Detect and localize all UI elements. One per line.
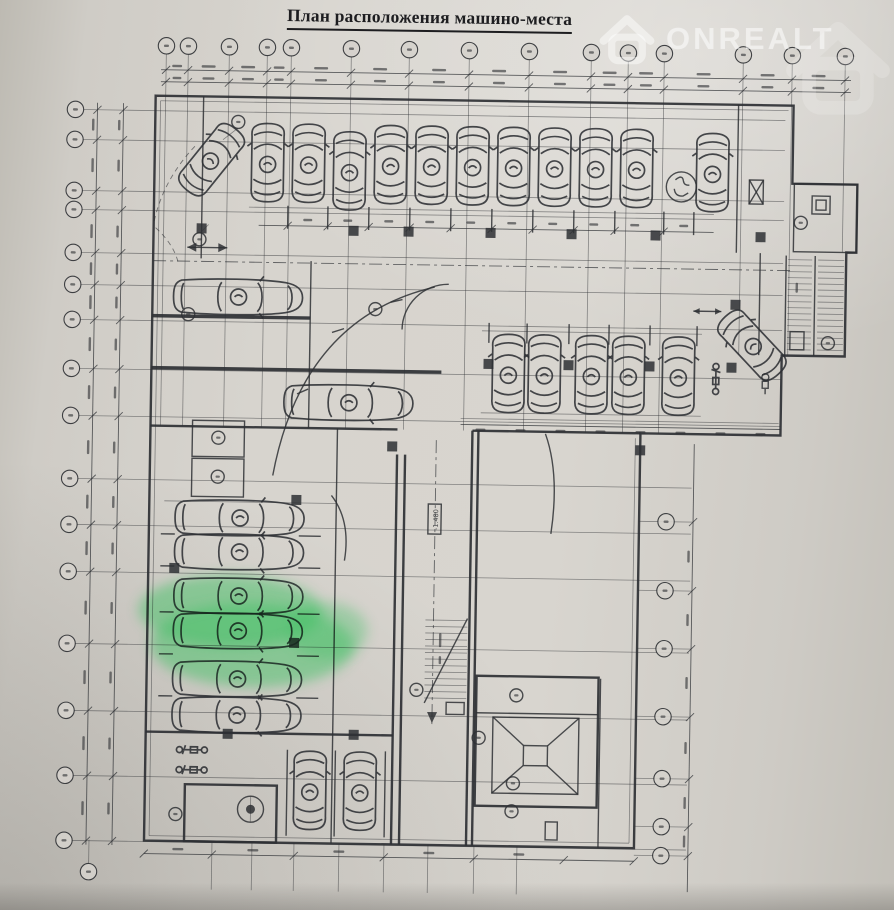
- parked-car-symbol: [175, 496, 305, 540]
- dim-number-smudge: [343, 219, 352, 222]
- grid-axis-bubble: [56, 832, 73, 849]
- bollard-base: [762, 381, 768, 394]
- plan-line: [273, 285, 435, 478]
- plan-line: [144, 854, 634, 862]
- parked-car-symbol: [171, 116, 252, 203]
- circled-number-marker: [410, 683, 423, 696]
- dim-number-smudge: [202, 77, 214, 80]
- parked-car-symbol: [370, 125, 412, 204]
- grid-axis-bubble: [63, 360, 80, 377]
- dim-number-smudge: [439, 656, 442, 664]
- dim-number-smudge: [333, 850, 344, 853]
- ramp-down-arrow: [427, 712, 437, 723]
- grid-axis-bubble: [658, 513, 675, 530]
- column-square: [730, 300, 740, 310]
- circled-number-marker: [182, 308, 195, 321]
- grid-axis-bubble: [65, 244, 82, 261]
- dim-number-smudge: [107, 802, 110, 814]
- two-way-arrow-icon: [187, 243, 227, 253]
- dim-number-smudge: [640, 84, 652, 87]
- plan-line: [334, 751, 335, 837]
- dim-number-smudge: [90, 224, 93, 238]
- parked-car-symbol: [534, 128, 576, 207]
- accessible-parking-icon: [666, 172, 696, 202]
- dim-number-smudge: [595, 430, 605, 433]
- dim-number-smudge: [90, 262, 93, 275]
- grid-axis-bubble: [401, 41, 418, 58]
- parked-car-symbol: [173, 275, 303, 319]
- dim-number-smudge: [84, 601, 87, 615]
- plan-line: [425, 678, 467, 679]
- column-square: [755, 232, 765, 242]
- dim-number-smudge: [715, 432, 725, 435]
- dim-number-smudge: [81, 801, 84, 815]
- plan-line: [383, 844, 384, 892]
- dim-number-smudge: [630, 224, 639, 227]
- plan-line: [425, 652, 467, 653]
- plan-line: [425, 633, 467, 634]
- dim-number-smudge: [114, 387, 117, 399]
- dim-number-smudge: [679, 225, 688, 228]
- dim-number-smudge: [812, 75, 826, 78]
- dim-number-smudge: [85, 541, 88, 555]
- plan-line: [384, 751, 385, 837]
- dim-number-smudge: [373, 68, 387, 71]
- plan-line: [152, 316, 310, 318]
- circled-number-marker: [212, 431, 225, 444]
- plan-line: [424, 685, 466, 686]
- plan-line: [493, 717, 524, 745]
- dim-number-smudge: [384, 220, 393, 223]
- dim-number-smudge: [554, 83, 566, 86]
- dim-number-smudge: [639, 72, 653, 75]
- dim-number-smudge: [86, 495, 89, 509]
- dim-number-smudge: [466, 221, 475, 224]
- column-square: [485, 228, 495, 238]
- plan-line: [151, 368, 441, 373]
- plan-line: [86, 103, 98, 845]
- plan-line: [424, 698, 466, 699]
- dim-number-smudge: [172, 848, 183, 851]
- dim-number-smudge: [108, 737, 111, 749]
- dim-number-smudge: [603, 71, 617, 74]
- plan-line: [544, 434, 555, 534]
- dim-number-smudge: [92, 119, 95, 131]
- parked-car-symbol: [339, 752, 381, 831]
- dim-number-smudge: [589, 223, 598, 226]
- column-square: [387, 441, 397, 451]
- dim-number-smudge: [110, 602, 113, 614]
- grid-axis-bubble: [80, 863, 97, 880]
- grid-axis-bubble: [158, 37, 175, 54]
- circled-number-marker: [169, 807, 182, 820]
- dim-number-smudge: [687, 551, 690, 563]
- dim-number-smudge: [89, 295, 92, 309]
- walls: [144, 96, 859, 852]
- dim-number-smudge: [274, 66, 285, 69]
- parked-car-symbol: [607, 336, 649, 415]
- plan-line: [473, 846, 474, 894]
- dim-number-smudge: [425, 221, 434, 224]
- plan-rotated-group: -1.480: [55, 36, 859, 900]
- dim-number-smudge: [513, 853, 524, 856]
- dim-number-smudge: [683, 836, 686, 848]
- dim-number-smudge: [433, 81, 445, 84]
- column-square: [349, 730, 359, 740]
- dim-number-smudge: [423, 852, 434, 855]
- circled-number-marker: [510, 689, 523, 702]
- dim-number-smudge: [116, 263, 119, 274]
- plan-line: [332, 328, 344, 332]
- grid-axis-bubble: [652, 847, 669, 864]
- grid-axis-bubble: [67, 131, 84, 148]
- column-square: [291, 495, 301, 505]
- dim-number-smudge: [439, 633, 442, 647]
- parked-car-symbol: [523, 335, 565, 414]
- plan-line: [425, 646, 467, 647]
- grid-axis-bubbles: [55, 36, 854, 892]
- dim-number-smudge: [493, 82, 505, 85]
- parked-car-symbol: [570, 335, 612, 414]
- dim-number-smudge: [117, 160, 120, 172]
- plan-line: [77, 524, 691, 534]
- dim-number-smudge: [548, 223, 557, 226]
- column-square: [650, 230, 660, 240]
- plan-line: [161, 101, 789, 111]
- two-way-arrow-icon: [693, 308, 721, 315]
- grid-axis-bubble: [64, 311, 81, 328]
- dim-number-smudge: [685, 677, 688, 689]
- grid-axis-bubble: [837, 48, 854, 65]
- grid-axis-bubble: [657, 582, 674, 599]
- dim-number-smudge: [697, 85, 709, 88]
- dim-number-smudge: [82, 736, 85, 750]
- dim-number-smudge: [761, 74, 775, 77]
- dim-number-smudge: [492, 70, 506, 73]
- column-square: [566, 229, 576, 239]
- elevation-label: -1.480: [432, 509, 440, 530]
- grid-axis-bubble: [653, 818, 670, 835]
- dim-number-smudge: [118, 120, 121, 131]
- dim-number-smudge: [812, 87, 824, 90]
- circled-number-marker: [193, 233, 206, 246]
- plan-line: [446, 702, 464, 714]
- dim-number-smudge: [274, 78, 284, 81]
- circled-number-marker: [369, 303, 382, 316]
- grid-axis-bubble: [58, 702, 75, 719]
- dim-number-smudge: [303, 219, 312, 222]
- dim-number-smudge: [91, 158, 94, 172]
- page-title: План расположения машино-места: [287, 5, 572, 34]
- plan-line: [547, 766, 578, 794]
- grid-axis-bubble: [343, 40, 360, 57]
- column-square: [726, 363, 736, 373]
- plan-linework: [55, 36, 859, 900]
- grid-axis-bubble: [57, 767, 74, 784]
- grid-axis-bubble: [64, 276, 81, 293]
- grid-axis-bubble: [59, 635, 76, 652]
- grid-axis-bubble: [62, 407, 79, 424]
- dim-number-smudge: [761, 86, 773, 89]
- plan-line: [466, 431, 473, 846]
- plan-line: [81, 252, 783, 263]
- plan-line: [425, 672, 467, 673]
- dim-number-smudge: [315, 79, 327, 82]
- dim-number-smudge: [109, 671, 112, 683]
- dim-number-smudge: [603, 83, 615, 86]
- circled-number-marker: [211, 470, 224, 483]
- grid-axis-bubble: [656, 640, 673, 657]
- dim-number-smudge: [88, 385, 91, 399]
- plan-line: [425, 626, 467, 627]
- grid-axis-bubble: [583, 44, 600, 61]
- grid-axis-bubble: [283, 39, 300, 56]
- vehicles: [161, 116, 798, 837]
- parked-car-symbol: [452, 126, 494, 205]
- motorcycle-symbol: [176, 745, 207, 754]
- scanned-plan-photo: -1.480 План расположения машино-места ON…: [0, 0, 894, 910]
- plan-line: [482, 331, 702, 334]
- plan-line: [161, 82, 851, 93]
- grid-axis-bubble: [784, 47, 801, 64]
- plan-line: [545, 822, 557, 840]
- grid-axis-bubble: [521, 43, 538, 60]
- plan-line: [461, 418, 779, 423]
- grid-axis-bubble: [655, 708, 672, 725]
- parked-car-symbol: [411, 126, 453, 205]
- circled-number-marker: [232, 115, 245, 128]
- plan-line: [476, 713, 598, 715]
- dim-number-smudge: [172, 65, 182, 68]
- plan-line: [83, 140, 785, 151]
- grid-axis-bubble: [60, 563, 77, 580]
- dim-number-smudge: [202, 65, 216, 68]
- plan-line: [79, 415, 781, 426]
- parked-car-symbol: [615, 129, 657, 208]
- grid-axis-bubble: [461, 42, 478, 59]
- plan-line: [425, 620, 467, 621]
- grid-axis-bubble: [656, 45, 673, 62]
- plan-line: [425, 639, 467, 640]
- grid-axis-bubble: [180, 38, 197, 55]
- plan-line: [399, 455, 405, 845]
- dim-number-smudge: [112, 496, 115, 508]
- plan-line: [330, 495, 346, 560]
- column-square: [349, 226, 359, 236]
- plan-line: [816, 200, 826, 210]
- grid-axis-bubble: [66, 182, 83, 199]
- grid-axis-bubble: [654, 770, 671, 787]
- circled-number-marker: [794, 216, 807, 229]
- dim-number-smudge: [83, 670, 86, 684]
- parked-car-symbol: [172, 693, 302, 737]
- column-square: [563, 360, 573, 370]
- grid-axis-bubble: [67, 101, 84, 118]
- dim-number-smudge: [247, 849, 258, 852]
- dim-number-smudge: [111, 543, 114, 555]
- plan-line: [112, 103, 124, 845]
- plan-line: [425, 665, 467, 666]
- parked-car-symbol: [288, 124, 330, 203]
- grid-axis-bubble: [66, 201, 83, 218]
- plan-line: [812, 196, 830, 214]
- grid-axis-bubble: [61, 516, 78, 533]
- dim-number-smudge: [115, 297, 118, 309]
- grid-axis-bubble: [259, 39, 276, 56]
- plan-line: [424, 618, 467, 704]
- dim-number-smudge: [635, 431, 645, 434]
- plan-line: [308, 261, 311, 428]
- plan-line: [548, 718, 579, 746]
- parked-car-symbol: [574, 128, 616, 207]
- plan-line: [391, 454, 397, 844]
- grid-axis-bubble: [221, 38, 238, 55]
- dim-number-smudge: [683, 797, 686, 809]
- plan-line: [83, 110, 785, 121]
- grid-axis-bubble: [620, 45, 637, 62]
- dim-number-smudge: [684, 742, 687, 754]
- parked-car-symbol: [657, 337, 699, 416]
- plan-line: [523, 746, 547, 766]
- column-square: [223, 729, 233, 739]
- dim-number-smudge: [675, 432, 685, 435]
- plan-line: [286, 750, 287, 836]
- grid-axis-bubble: [735, 47, 752, 64]
- dim-number-smudge: [114, 339, 117, 351]
- dim-number-smudge: [116, 226, 119, 238]
- plan-line: [73, 775, 687, 785]
- dim-number-smudge: [697, 73, 711, 76]
- dim-number-smudge: [507, 222, 516, 225]
- motorcycle-symbol: [711, 363, 720, 394]
- plan-line: [144, 96, 859, 852]
- circled-number-marker: [506, 777, 519, 790]
- dim-number-smudge: [475, 429, 485, 432]
- parked-car-symbol: [289, 751, 331, 830]
- grid-axis-bubble: [61, 470, 78, 487]
- plan-line: [80, 319, 782, 330]
- dim-number-smudge: [555, 430, 565, 433]
- dim-number-smudge: [515, 429, 525, 432]
- dim-number-smudge: [242, 78, 254, 81]
- parked-car-symbol: [174, 530, 304, 574]
- plan-line: [788, 64, 793, 356]
- plan-line: [793, 184, 857, 253]
- dim-number-smudge: [241, 66, 255, 69]
- floor-plan-drawing: -1.480: [0, 0, 894, 910]
- dim-number-smudge: [87, 440, 90, 454]
- plan-line: [293, 843, 294, 891]
- dim-number-smudge: [374, 80, 386, 83]
- plan-line: [81, 284, 783, 295]
- plan-line: [211, 842, 212, 890]
- plan-line: [736, 105, 738, 253]
- plan-line: [151, 426, 398, 430]
- plan-line: [790, 332, 804, 350]
- plan-line: [78, 478, 692, 488]
- plan-line: [297, 389, 308, 394]
- dim-number-smudge: [88, 337, 91, 351]
- column-square: [404, 227, 414, 237]
- plan-line: [82, 210, 784, 221]
- plan-line: [814, 256, 816, 356]
- dim-number-smudge: [553, 71, 567, 74]
- dim-number-smudge: [686, 614, 689, 626]
- parked-car-symbol: [487, 334, 529, 413]
- dim-number-smudge: [795, 283, 798, 293]
- dim-number-smudge: [755, 433, 765, 436]
- dim-number-smudge: [113, 442, 116, 454]
- dim-number-smudge: [432, 69, 446, 72]
- plan-line: [461, 424, 781, 429]
- plan-line: [76, 571, 690, 581]
- column-square: [644, 361, 654, 371]
- motorcycle-symbol: [176, 765, 207, 774]
- column-square: [635, 445, 645, 455]
- dim-number-smudge: [173, 77, 182, 80]
- parked-car-symbol: [247, 123, 289, 202]
- dim-number-smudge: [314, 67, 328, 70]
